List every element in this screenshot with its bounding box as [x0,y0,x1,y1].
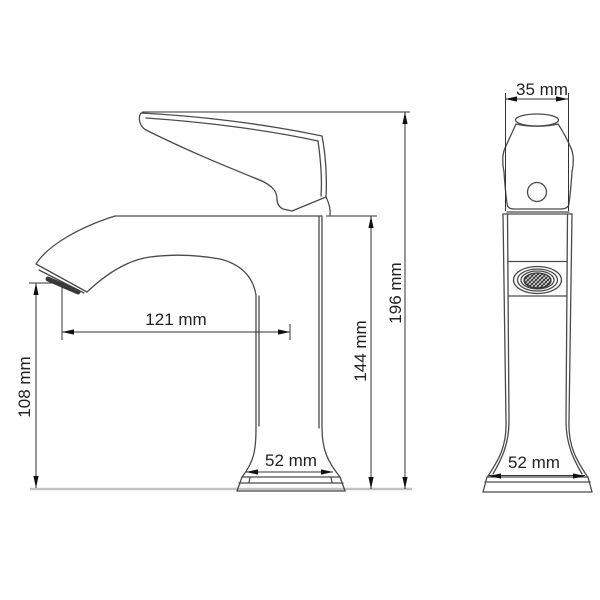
arrow-up [33,283,38,295]
front-body-right-outer [569,214,587,476]
arrow-down [368,477,373,489]
base-plate-tick-right [331,477,332,483]
aerator [514,267,562,294]
side-view [36,113,345,491]
aerator-mesh [524,273,551,288]
arrow-down [33,476,38,488]
front-handle [503,124,574,209]
arrow-left [489,473,501,478]
arrow-up [402,112,407,124]
dimension-front-base-width [489,473,585,478]
label-side-base-width: 52 mm [265,451,317,470]
label-total-height: 196 mm [386,262,405,323]
front-body-left-inner [493,214,509,474]
faucet-drawing: 121 mm 108 mm 144 mm 196 mm 52 mm 35 mm … [0,0,600,600]
label-spout-reach: 121 mm [145,310,206,329]
label-spout-height: 108 mm [15,356,34,417]
arrow-up [368,216,373,228]
label-body-height: 144 mm [351,320,370,381]
label-front-base-width: 52 mm [508,453,560,472]
front-base-left-bevel [483,477,487,492]
front-base-right-bevel [588,477,592,492]
base-plate-tick-left [249,477,250,483]
arrow-down [402,477,407,489]
handle-top-ellipse [516,114,559,126]
arrow-right [573,473,585,478]
front-body-left-outer [488,214,506,476]
front-view [483,114,592,492]
label-front-top-width: 35 mm [516,80,568,99]
technical-drawing-page: 121 mm 108 mm 144 mm 196 mm 52 mm 35 mm … [0,0,600,600]
front-body-right-inner [566,214,582,474]
arrow-left [62,329,74,334]
faucet-body-spout [36,216,340,477]
dimension-spout-height [29,283,64,488]
faucet-handle [139,113,326,211]
handle-to-body-arc [326,197,330,215]
